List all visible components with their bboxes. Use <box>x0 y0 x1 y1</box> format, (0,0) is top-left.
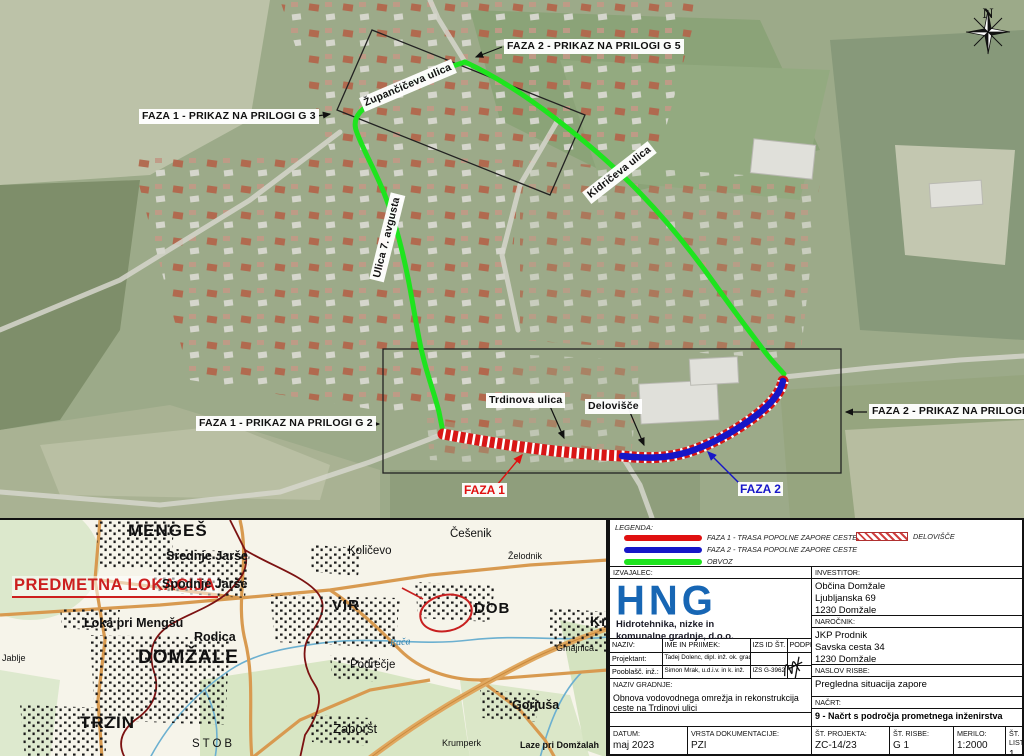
narocnik-line2: Savska cesta 34 <box>815 642 1024 654</box>
naslov-risbe-value: Pregledna situacija zapore <box>812 677 1024 697</box>
title-block: IZVAJALEC: HNG Hidrotehnika, nizke in ko… <box>610 567 1022 754</box>
investitor-label: INVESTITOR: <box>812 567 1024 579</box>
naslov-risbe-label: NASLOV RISBE: <box>812 665 1024 677</box>
place-zelodnik: Želodnik <box>508 552 542 561</box>
label-faza1: FAZA 1 <box>462 483 507 497</box>
label-delovisce: Delovišče <box>585 399 642 414</box>
place-gmajnica: Gmajnica <box>556 644 594 653</box>
datum-label: DATUM: <box>612 728 685 738</box>
legend-swatch-delovisce <box>856 532 908 541</box>
nacrt-value: 9 - Načrt s področja prometnega inženirs… <box>812 709 1024 725</box>
label-faza1-priloga-g3: FAZA 1 - PRIKAZ NA PRILOGI G 3 <box>139 109 319 124</box>
narocnik-label: NAROČNIK: <box>812 616 1024 628</box>
col-header-ime: IME IN PRIIMEK: <box>662 639 750 652</box>
legend-label-delovisce: DELOVIŠČE <box>913 532 955 541</box>
legend-item-obvoz: OBVOZ <box>624 557 733 566</box>
place-krumperk: Krumperk <box>442 739 481 748</box>
legend-swatch-faza2 <box>624 547 702 553</box>
legend-item-faza1: FAZA 1 - TRASA POPOLNE ZAPORE CESTE <box>624 533 857 542</box>
merilo-value: 1:2000 <box>956 738 1003 751</box>
merilo-cell: MERILO: 1:2000 <box>954 727 1006 754</box>
place-vir: VIR <box>332 598 360 613</box>
place-cesenik: Češenik <box>450 529 492 541</box>
titleblock-right-column: INVESTITOR: Občina Domžale Ljubljanska 6… <box>812 567 1024 726</box>
street-label-trdinova: Trdinova ulica <box>486 393 565 408</box>
label-faza2-priloga-g4: FAZA 2 - PRIKAZ NA PRILOGI G 4 <box>869 404 1024 419</box>
place-loka-pri-mengsu: Loka pri Mengšu <box>84 617 183 630</box>
narocnik-line3: 1230 Domžale <box>815 654 1024 666</box>
legend-titleblock-panel: LEGENDA: FAZA 1 - TRASA POPOLNE ZAPORE C… <box>608 518 1024 756</box>
investitor-line3: 1230 Domžale <box>815 605 1024 617</box>
st-projekta-label: ŠT. PROJEKTA: <box>814 728 887 738</box>
narocnik-address: JKP Prodnik Savska cesta 34 1230 Domžale <box>812 628 1024 665</box>
col-header-podpis: PODPIS <box>787 639 812 652</box>
investitor-line1: Občina Domžale <box>815 581 1024 593</box>
legend-title: LEGENDA: <box>615 523 653 532</box>
north-compass: N <box>962 6 1014 76</box>
place-trzin: TRZIN <box>80 714 135 731</box>
drawing-sheet: FAZA 2 - PRIKAZ NA PRILOGI G 5 FAZA 1 - … <box>0 0 1024 756</box>
st-risbe-cell: ŠT. RISBE: G 1 <box>890 727 954 754</box>
place-jablje: Jablje <box>2 654 26 663</box>
investitor-address: Občina Domžale Ljubljanska 69 1230 Domža… <box>812 579 1024 616</box>
st-lista-value: 1 <box>1008 747 1024 754</box>
legend-item-delovisce: DELOVIŠČE <box>856 532 955 541</box>
place-stob: STOB <box>192 739 235 751</box>
st-lista-cell: ŠT. LISTA: 1 <box>1006 727 1024 754</box>
place-krtina: Krtina <box>590 614 608 628</box>
place-kolicevo: Količevo <box>348 546 391 558</box>
st-projekta-cell: ŠT. PROJEKTA: ZC-14/23 <box>812 727 890 754</box>
location-map-panel: PREDMETNA LOKACIJA MENGEŠ Srednje Jarše … <box>0 518 608 756</box>
place-dob: DOB <box>474 601 510 616</box>
st-risbe-label: ŠT. RISBE: <box>892 728 951 738</box>
company-logo-block: HNG Hidrotehnika, nizke in komunalne gra… <box>610 579 811 639</box>
legend-label-faza1: FAZA 1 - TRASA POPOLNE ZAPORE CESTE <box>707 533 857 542</box>
row-projektant-label: Projektant: <box>610 652 662 665</box>
place-gorjusa: Gorjuša <box>512 699 559 712</box>
place-spodnje-jarse: Spodnje Jarše <box>162 578 247 591</box>
signature-icon <box>779 654 809 680</box>
legend-swatch-faza1 <box>624 535 702 541</box>
titleblock-left-column: IZVAJALEC: HNG Hidrotehnika, nizke in ko… <box>610 567 812 726</box>
datum-value: maj 2023 <box>612 738 685 751</box>
hng-logo: HNG <box>616 581 805 621</box>
aerial-graphics <box>0 0 1024 518</box>
col-header-izs: IZS ID ŠT. <box>750 639 787 652</box>
investitor-line2: Ljubljanska 69 <box>815 593 1024 605</box>
place-menges: MENGEŠ <box>128 522 208 539</box>
place-domzale: DOMŽALE <box>138 648 239 667</box>
titleblock-bottom-strip: DATUM: maj 2023 VRSTA DOKUMENTACIJE: PZI… <box>610 726 1024 754</box>
st-projekta-value: ZC-14/23 <box>814 738 887 751</box>
legend: LEGENDA: FAZA 1 - TRASA POPOLNE ZAPORE C… <box>610 520 1022 567</box>
place-srednje-jarse: Srednje Jarše <box>166 550 248 563</box>
vrsta-cell: VRSTA DOKUMENTACIJE: PZI <box>688 727 812 754</box>
place-rodica: Rodica <box>194 631 236 644</box>
place-laze-pri-domzalah: Laze pri Domžalah <box>520 741 599 750</box>
vrsta-label: VRSTA DOKUMENTACIJE: <box>690 728 809 738</box>
compass-rose-icon <box>962 6 1014 58</box>
row-projektant-name: Tadej Dolenc, dipl. inž. ok. grad. (UN) <box>662 652 750 665</box>
st-lista-label: ŠT. LISTA: <box>1008 728 1024 747</box>
st-risbe-value: G 1 <box>892 738 951 751</box>
naziv-gradnje-value: Obnova vodovodnega omrežja in rekonstruk… <box>610 691 811 713</box>
legend-label-faza2: FAZA 2 - TRASA POPOLNE ZAPORE CESTE <box>707 545 857 554</box>
legend-swatch-obvoz <box>624 559 702 565</box>
aerial-photo-panel: FAZA 2 - PRIKAZ NA PRILOGI G 5 FAZA 1 - … <box>0 0 1024 518</box>
place-podrecje: Podrečje <box>350 660 395 672</box>
row-pooblasceni-name: Simon Mrak, u.d.i.v. in k. inž. <box>662 665 750 678</box>
narocnik-line1: JKP Prodnik <box>815 630 1024 642</box>
row-pooblasceni-label: Pooblašč. inž.: <box>610 665 662 678</box>
legend-item-faza2: FAZA 2 - TRASA POPOLNE ZAPORE CESTE <box>624 545 857 554</box>
nacrt-label: NAČRT: <box>812 697 1024 709</box>
place-zaborst: Zaboršt <box>333 722 377 735</box>
datum-cell: DATUM: maj 2023 <box>610 727 688 754</box>
naziv-gradnje-label: NAZIV GRADNJE: <box>610 679 811 691</box>
river-raca-label: Rača <box>390 637 411 648</box>
label-faza2: FAZA 2 <box>738 482 783 496</box>
merilo-label: MERILO: <box>956 728 1003 738</box>
legend-label-obvoz: OBVOZ <box>707 557 733 566</box>
vrsta-value: PZI <box>690 738 809 751</box>
label-faza2-priloga-g5: FAZA 2 - PRIKAZ NA PRILOGI G 5 <box>504 39 684 54</box>
label-faza1-priloga-g2: FAZA 1 - PRIKAZ NA PRILOGI G 2 <box>196 416 376 431</box>
